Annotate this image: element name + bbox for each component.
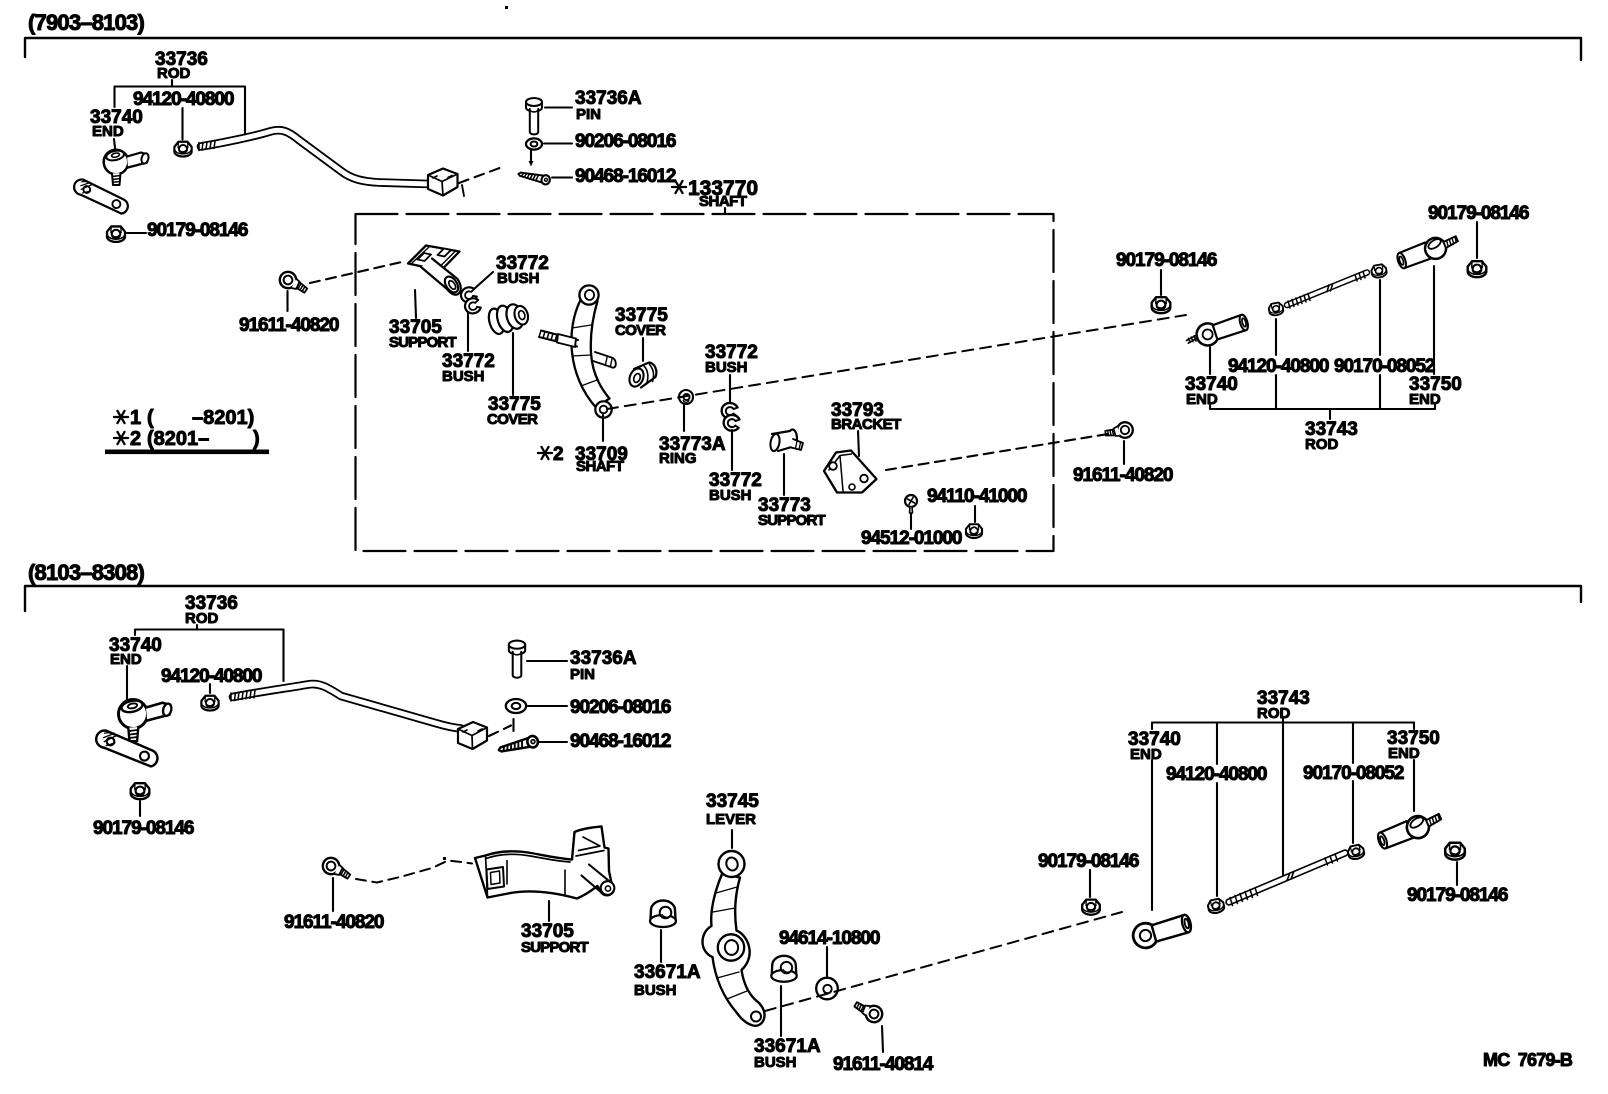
svg-text:1: 1 (130, 407, 141, 429)
svg-text:BUSH: BUSH (497, 270, 540, 287)
svg-text:94120-40800: 94120-40800 (133, 89, 234, 110)
svg-text:COVER: COVER (615, 322, 666, 339)
svg-text:ROD: ROD (1305, 436, 1339, 453)
svg-text:94512-01000: 94512-01000 (861, 528, 962, 549)
svg-text:(7903–8103): (7903–8103) (28, 10, 144, 35)
svg-text:(8103–8308): (8103–8308) (28, 560, 144, 585)
svg-text:END: END (1388, 745, 1420, 762)
svg-text:COVER: COVER (487, 411, 538, 428)
svg-text:94110-41000: 94110-41000 (927, 486, 1027, 507)
svg-text:LEVER: LEVER (706, 811, 756, 828)
svg-text:ROD: ROD (185, 610, 219, 627)
svg-text:(8201–: (8201– (147, 428, 209, 450)
svg-text:2: 2 (553, 444, 564, 465)
svg-text:END: END (110, 651, 142, 668)
svg-text:PIN: PIN (576, 106, 601, 123)
svg-text:90179-08146: 90179-08146 (1116, 250, 1217, 271)
svg-text:94120-40800: 94120-40800 (1228, 356, 1329, 377)
svg-text:94614-10800: 94614-10800 (779, 928, 880, 949)
svg-text:–8201): –8201) (192, 407, 254, 429)
svg-text:90179-08146: 90179-08146 (1038, 851, 1139, 872)
svg-text:90468-16012: 90468-16012 (575, 166, 676, 187)
svg-text:90179-08146: 90179-08146 (93, 818, 194, 839)
svg-text:94120-40800: 94120-40800 (161, 666, 262, 687)
svg-text:ROD: ROD (1257, 705, 1291, 722)
svg-text:END: END (1130, 746, 1162, 763)
svg-text:RING: RING (659, 450, 697, 467)
svg-text:91611-40814: 91611-40814 (833, 1054, 934, 1075)
svg-text:BUSH: BUSH (709, 487, 752, 504)
svg-text:90179-08146: 90179-08146 (147, 220, 248, 241)
svg-text:90179-08146: 90179-08146 (1428, 203, 1529, 224)
svg-text:SHAFT: SHAFT (699, 193, 747, 210)
svg-text:END: END (1186, 391, 1218, 408)
svg-text:BUSH: BUSH (705, 359, 748, 376)
svg-text:END: END (1409, 391, 1441, 408)
svg-text:MC 7679-B: MC 7679-B (1483, 1050, 1573, 1070)
svg-text:BUSH: BUSH (442, 368, 485, 385)
svg-text:33745: 33745 (706, 791, 759, 812)
svg-text:BRACKET: BRACKET (831, 416, 901, 433)
svg-text:PIN: PIN (570, 666, 595, 683)
svg-text:SHAFT: SHAFT (576, 458, 624, 475)
svg-text:ROD: ROD (157, 65, 191, 82)
svg-text:90206-08016: 90206-08016 (575, 131, 676, 152)
svg-text:91611-40820: 91611-40820 (284, 912, 384, 933)
svg-text:SUPPORT: SUPPORT (521, 939, 589, 956)
svg-text:33671A: 33671A (634, 962, 701, 983)
svg-text:(: ( (147, 407, 154, 429)
svg-text:BUSH: BUSH (634, 982, 677, 999)
svg-text:90206-08016: 90206-08016 (570, 697, 671, 718)
svg-text:90179-08146: 90179-08146 (1407, 885, 1508, 906)
svg-text:91611-40820: 91611-40820 (239, 315, 339, 336)
svg-text:SUPPORT: SUPPORT (389, 334, 457, 351)
svg-text:SUPPORT: SUPPORT (758, 512, 826, 529)
svg-text:91611-40820: 91611-40820 (1073, 465, 1173, 486)
svg-text:90468-16012: 90468-16012 (570, 731, 671, 752)
svg-text:): ) (253, 428, 260, 450)
svg-text:END: END (92, 123, 124, 140)
svg-text:94120-40800: 94120-40800 (1166, 764, 1267, 785)
svg-text:2: 2 (130, 428, 141, 450)
svg-text:BUSH: BUSH (754, 1054, 797, 1071)
